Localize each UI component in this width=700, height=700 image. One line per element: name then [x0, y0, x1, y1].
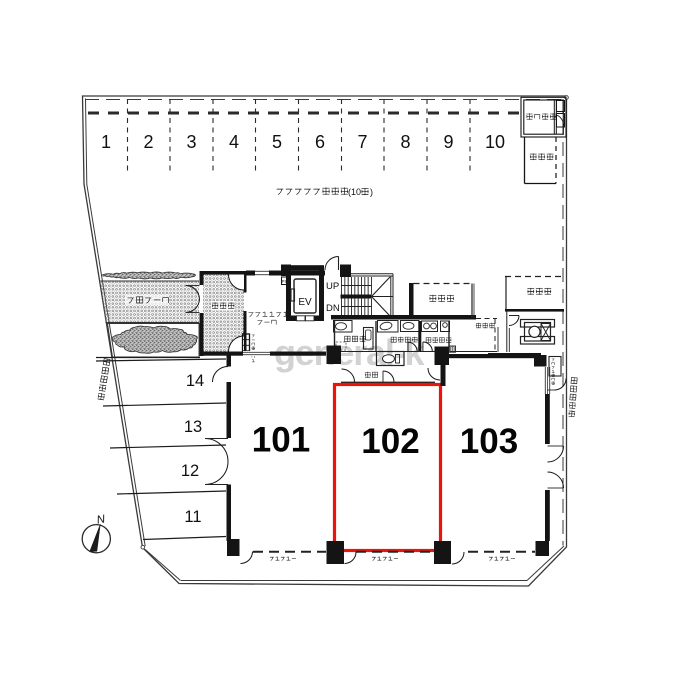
svg-text:14: 14: [186, 372, 204, 390]
svg-text:103: 103: [460, 422, 518, 461]
svg-text:102: 102: [361, 422, 419, 461]
svg-text:7: 7: [357, 132, 367, 152]
svg-text:11: 11: [184, 508, 201, 526]
svg-text:101: 101: [252, 421, 310, 460]
svg-text:6: 6: [315, 132, 325, 152]
svg-text:9: 9: [443, 132, 453, 152]
svg-text:12: 12: [181, 462, 199, 480]
svg-text:1: 1: [101, 132, 111, 152]
svg-text:5: 5: [272, 132, 282, 152]
svg-text:EV: EV: [298, 297, 312, 308]
svg-text:2: 2: [143, 132, 153, 152]
svg-text:UP: UP: [326, 281, 339, 292]
svg-text:4: 4: [229, 132, 239, 152]
svg-text:): ): [370, 187, 373, 197]
svg-text:(10: (10: [348, 187, 361, 197]
svg-text:3: 3: [186, 132, 196, 152]
svg-text:13: 13: [184, 418, 202, 436]
svg-text:8: 8: [400, 132, 410, 152]
svg-text:10: 10: [485, 132, 505, 152]
svg-text:DN: DN: [326, 303, 340, 314]
